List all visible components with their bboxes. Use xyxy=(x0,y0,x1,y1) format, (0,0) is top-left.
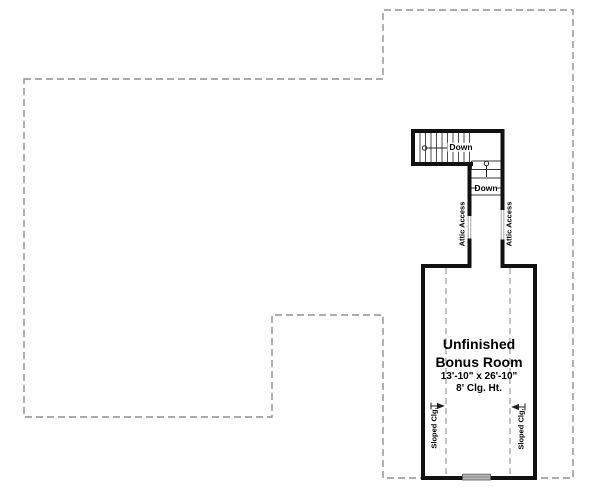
room-ceiling-height: 8' Clg. Ht. xyxy=(456,384,502,394)
bottom-window xyxy=(463,474,491,480)
room-title-line2: Bonus Room xyxy=(435,355,522,369)
room-dimensions: 13'-10" x 26'-10" xyxy=(441,372,518,382)
roof-outline-dashed xyxy=(24,10,573,478)
sloped-ceiling-label-left: Sloped Clg. xyxy=(430,407,438,448)
upper-down-arrow-start-icon xyxy=(422,146,426,150)
attic-access-label-right: Attic Access xyxy=(505,202,513,247)
floor-plan-drawing xyxy=(0,0,600,494)
attic-access-label-left: Attic Access xyxy=(458,202,466,247)
sloped-arrow-left-head-icon xyxy=(438,404,444,409)
attic-access-opening-left xyxy=(468,216,471,239)
sloped-ceiling-label-right: Sloped Clg. xyxy=(517,408,525,449)
attic-access-openings xyxy=(468,210,504,240)
sloped-ceiling-arrows xyxy=(431,403,525,411)
room-title-line1: Unfinished xyxy=(443,337,515,351)
lower-stair-down-label: Down xyxy=(474,184,497,193)
floor-plan: Down Down Attic Access Attic Access Unfi… xyxy=(0,0,600,494)
upper-stair-down-label: Down xyxy=(447,143,474,152)
lower-down-arrow-start-icon xyxy=(484,161,488,165)
